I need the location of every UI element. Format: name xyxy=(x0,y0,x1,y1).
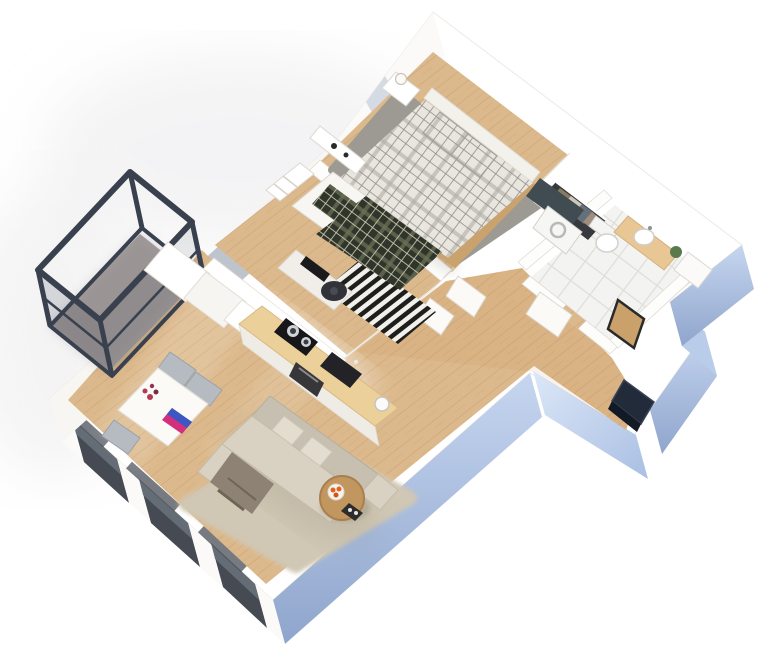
orange-flower-3 xyxy=(334,493,339,498)
bouquet-flower-3 xyxy=(143,389,148,394)
orange-flower-2 xyxy=(337,487,342,492)
toilet-bowl xyxy=(596,234,618,252)
console-decor-1 xyxy=(331,143,337,149)
basin xyxy=(634,229,654,245)
floor-plan-3d-render: 3D isometric apartment floor plan render xyxy=(0,0,768,657)
bouquet-flower-2 xyxy=(154,390,159,395)
kettle xyxy=(375,397,389,411)
sink-faucet xyxy=(354,360,358,364)
potted-plant xyxy=(670,246,682,258)
bouquet-flower-1 xyxy=(147,394,153,400)
flower-bowl xyxy=(328,484,344,500)
faucet xyxy=(648,226,652,230)
bouquet-flower-4 xyxy=(150,384,154,388)
floor-plan-stage: 3D isometric apartment floor plan render xyxy=(0,0,768,657)
console-decor-2 xyxy=(344,153,349,158)
pot-2-lid xyxy=(304,340,309,345)
orange-flower-1 xyxy=(331,488,336,493)
pot-1-lid xyxy=(290,328,296,334)
table-lamp-left xyxy=(396,74,407,85)
office-chair-hub xyxy=(330,287,338,295)
tray-cup-1 xyxy=(348,508,352,512)
tray-cup-2 xyxy=(354,511,358,515)
